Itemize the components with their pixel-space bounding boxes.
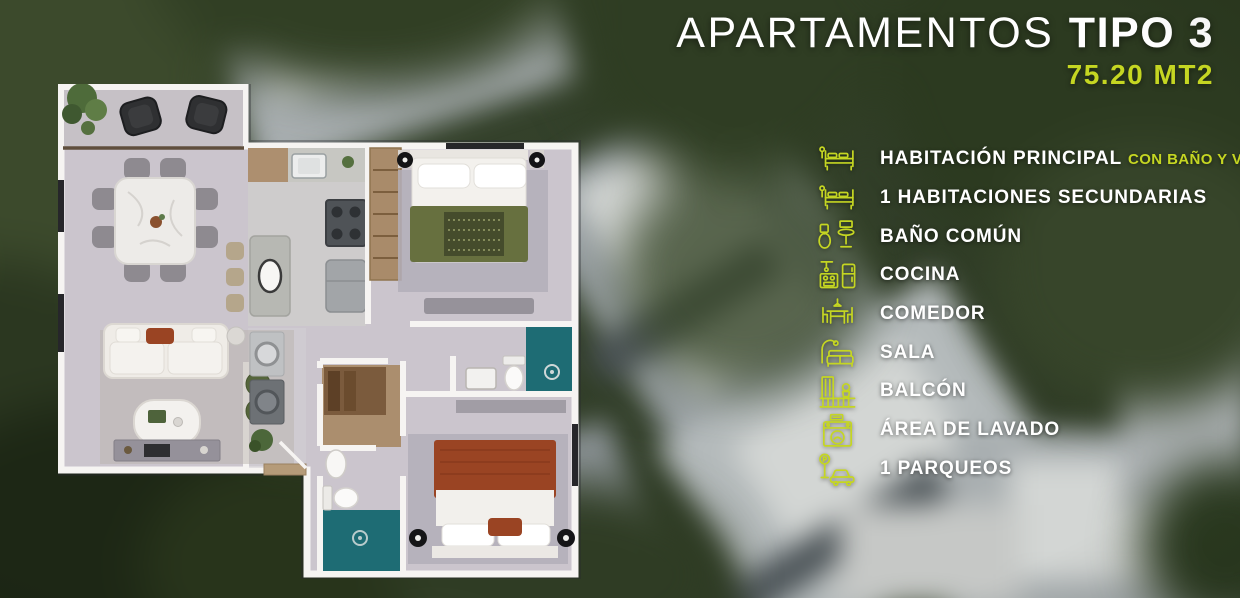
- bathroom-shower-floor: [526, 325, 572, 393]
- floor-plan: [58, 84, 585, 579]
- feature-label: COMEDOR: [880, 303, 986, 325]
- feature-row-sala: SALA: [814, 333, 1240, 372]
- feature-label: 1 PARQUEOS: [880, 458, 1012, 480]
- bathroom2-shower-floor: [322, 510, 401, 571]
- kitchen-icon: [814, 257, 861, 294]
- washing-machine-icon: [814, 412, 861, 449]
- feature-row-bano-comun: BAÑO COMÚN: [814, 217, 1240, 256]
- feature-row-habitacion-principal: HABITACIÓN PRINCIPAL CON BAÑO Y VESTIDOR: [814, 140, 1240, 179]
- dining-table-icon: [814, 296, 861, 333]
- feature-label: BAÑO COMÚN: [880, 226, 1022, 248]
- feature-row-comedor: COMEDOR: [814, 295, 1240, 334]
- balcony-icon: [814, 373, 861, 410]
- feature-row-balcon: BALCÓN: [814, 372, 1240, 411]
- marketing-slide: APARTAMENTOS TIPO 3 75.20 MT2 HABITACIÓN…: [0, 0, 1240, 598]
- car-parking-icon: [814, 450, 861, 487]
- toilet-icon: [814, 218, 861, 255]
- feature-row-area-de-lavado: ÁREA DE LAVADO: [814, 411, 1240, 450]
- feature-label: HABITACIÓN PRINCIPAL: [880, 148, 1122, 169]
- bed-icon: [814, 180, 861, 217]
- feature-label: SALA: [880, 342, 935, 364]
- feature-label: 1 HABITACIONES SECUNDARIAS: [880, 187, 1207, 209]
- title-bold: TIPO 3: [1069, 9, 1214, 57]
- feature-sublabel: CON BAÑO Y VESTIDOR: [1128, 151, 1240, 168]
- title-regular: APARTAMENTOS: [676, 9, 1054, 57]
- feature-label: COCINA: [880, 264, 960, 286]
- page-title: APARTAMENTOS TIPO 3: [676, 10, 1214, 56]
- header: APARTAMENTOS TIPO 3 75.20 MT2: [676, 10, 1214, 91]
- feature-row-cocina: COCINA: [814, 256, 1240, 295]
- bed-icon: [814, 141, 861, 178]
- sofa-icon: [814, 334, 861, 371]
- feature-list: HABITACIÓN PRINCIPAL CON BAÑO Y VESTIDOR…: [814, 140, 1240, 488]
- feature-row-habitaciones-secundarias: 1 HABITACIONES SECUNDARIAS: [814, 179, 1240, 218]
- feature-label: ÁREA DE LAVADO: [880, 419, 1060, 441]
- feature-label: BALCÓN: [880, 380, 967, 402]
- area-size-label: 75.20 MT2: [676, 59, 1214, 91]
- feature-row-parqueos: 1 PARQUEOS: [814, 450, 1240, 489]
